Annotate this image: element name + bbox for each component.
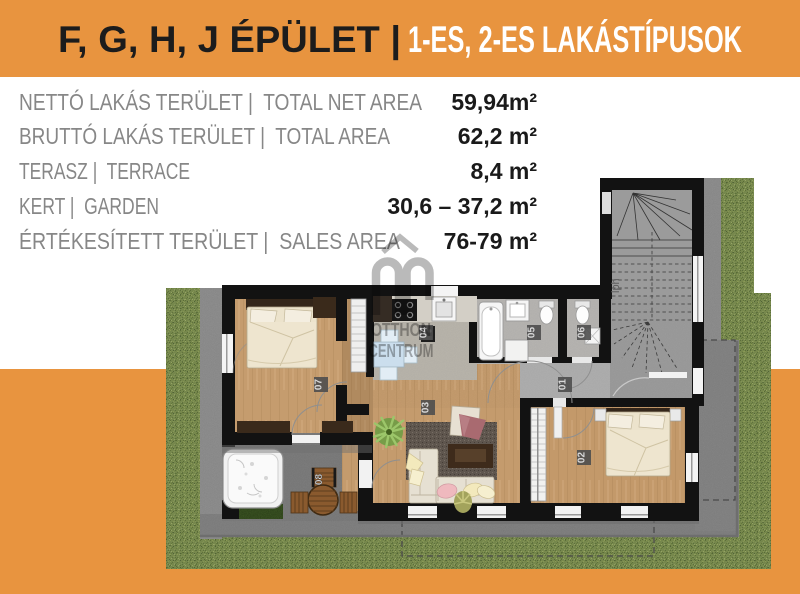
- svg-text:8,4 m²: 8,4 m²: [471, 158, 538, 184]
- svg-text:05: 05: [527, 327, 538, 339]
- svg-text:OTTHON: OTTHON: [371, 320, 431, 340]
- svg-text:CENTRUM: CENTRUM: [369, 341, 434, 361]
- svg-text:KERT | GARDEN: KERT | GARDEN: [19, 193, 159, 219]
- svg-text:lph: lph: [610, 278, 622, 293]
- svg-text:NETTÓ LAKÁS TERÜLET | TOTAL N: NETTÓ LAKÁS TERÜLET | TOTAL NET AREA: [19, 89, 423, 115]
- svg-text:ÉRTÉKESÍTETT TERÜLET | SALES: ÉRTÉKESÍTETT TERÜLET | SALES AREA: [19, 228, 401, 254]
- svg-text:59,94m²: 59,94m²: [451, 89, 537, 115]
- svg-text:03: 03: [421, 402, 432, 414]
- svg-text:01: 01: [558, 379, 569, 391]
- svg-text:TERASZ | TERRACE: TERASZ | TERRACE: [19, 158, 190, 184]
- svg-text:76-79 m²: 76-79 m²: [444, 228, 538, 254]
- svg-text:02: 02: [577, 452, 588, 464]
- svg-text:62,2 m²: 62,2 m²: [458, 123, 538, 149]
- svg-text:F, G, H, J ÉPÜLET |: F, G, H, J ÉPÜLET |: [58, 19, 401, 61]
- svg-text:08: 08: [314, 474, 325, 486]
- svg-text:BRUTTÓ LAKÁS TERÜLET | TOTAL: BRUTTÓ LAKÁS TERÜLET | TOTAL AREA: [19, 123, 391, 149]
- svg-text:07: 07: [314, 379, 325, 391]
- svg-text:30,6 – 37,2 m²: 30,6 – 37,2 m²: [387, 193, 537, 219]
- svg-text:1-ES, 2-ES LAKÁSTÍPUSOK: 1-ES, 2-ES LAKÁSTÍPUSOK: [408, 19, 742, 60]
- svg-text:06: 06: [577, 327, 588, 339]
